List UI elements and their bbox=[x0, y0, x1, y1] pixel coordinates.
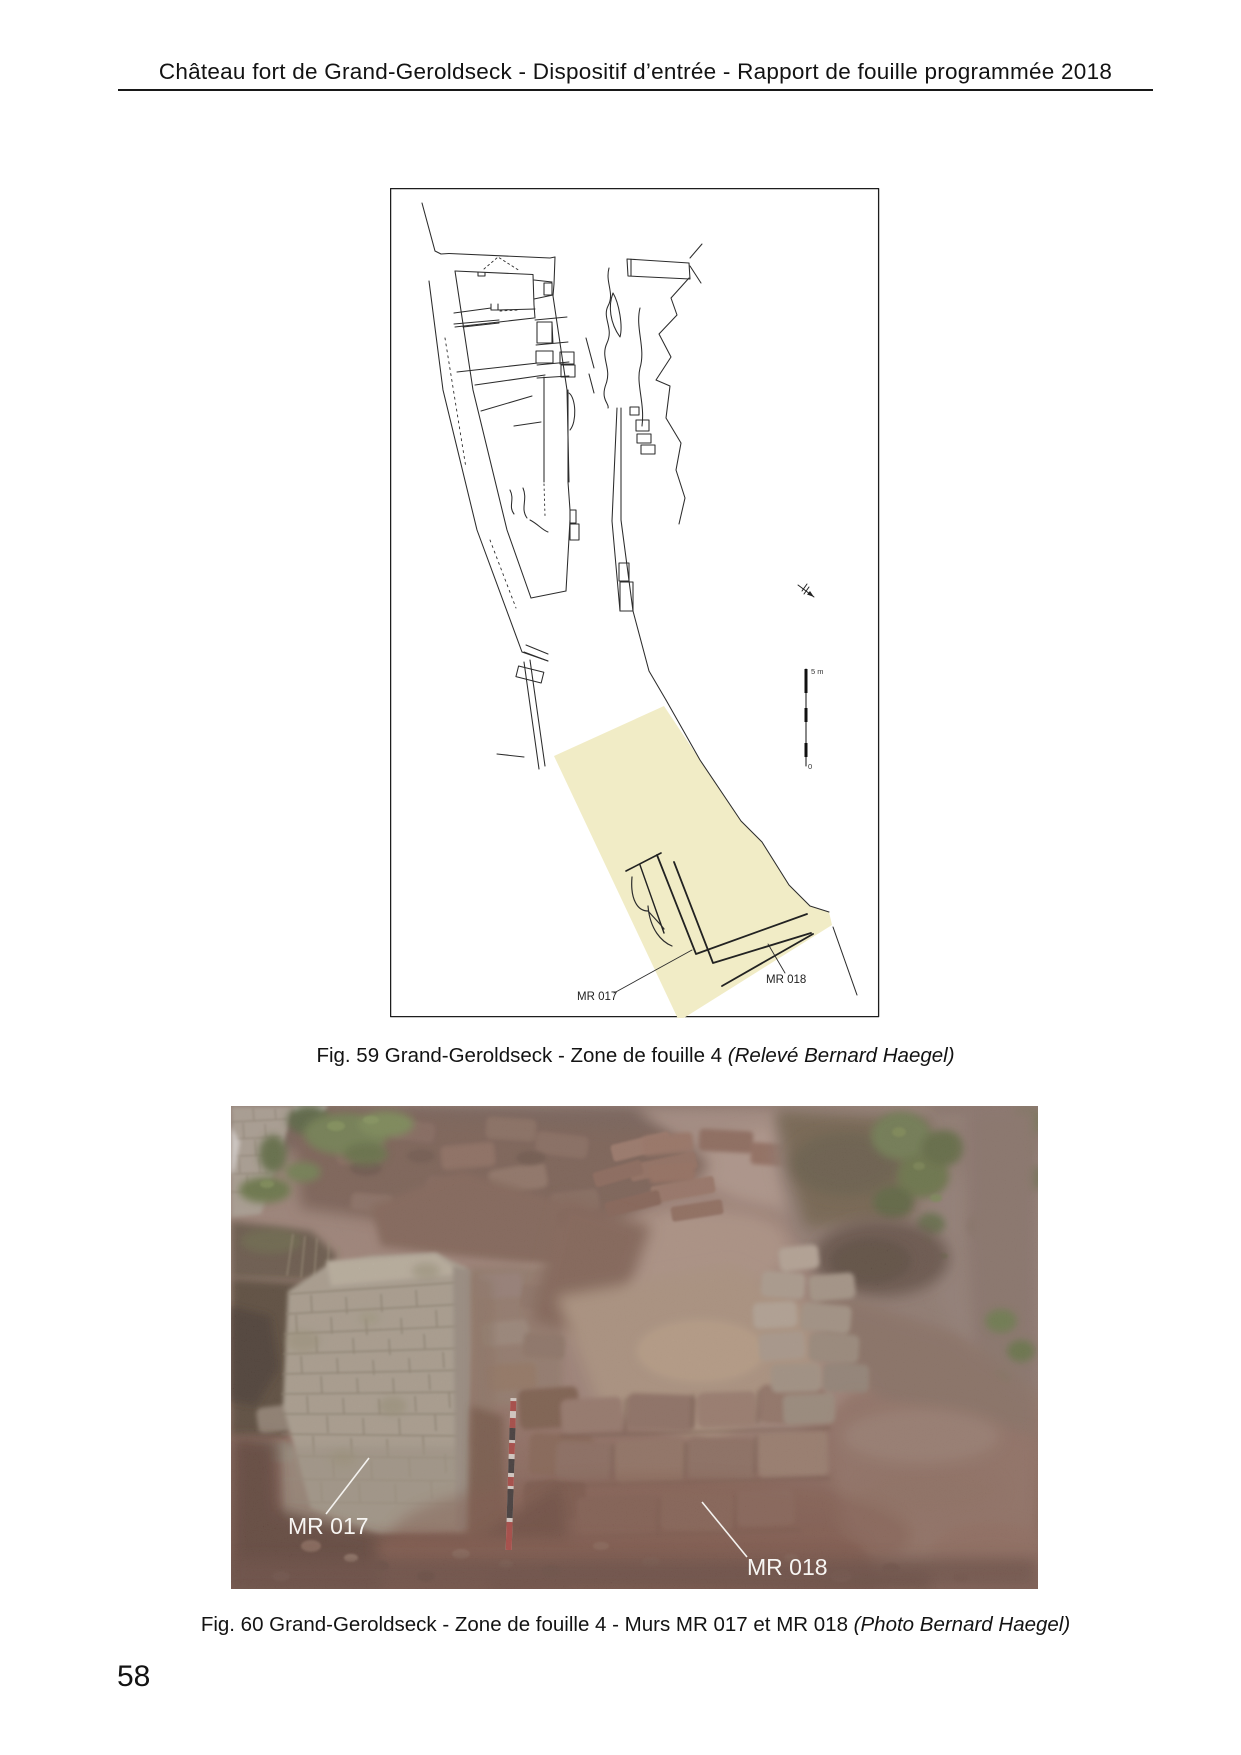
svg-text:MR 018: MR 018 bbox=[766, 974, 806, 986]
svg-text:0: 0 bbox=[808, 762, 812, 771]
svg-text:MR 017: MR 017 bbox=[288, 1513, 369, 1539]
svg-text:MR 017: MR 017 bbox=[577, 991, 617, 1003]
svg-text:5 m: 5 m bbox=[811, 667, 824, 676]
svg-text:MR 018: MR 018 bbox=[747, 1554, 828, 1580]
